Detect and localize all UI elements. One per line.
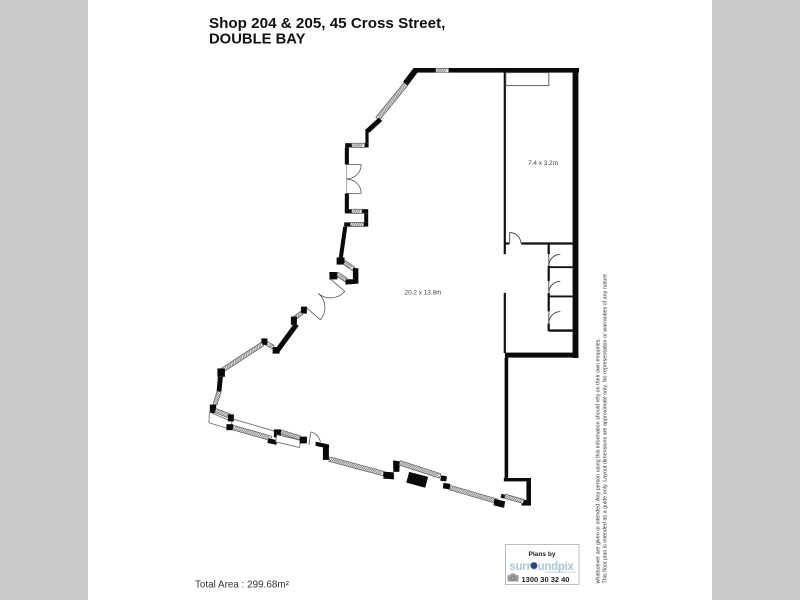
svg-text:20.2 x 13.8m: 20.2 x 13.8m (405, 290, 442, 297)
svg-text:Total Area : 299.68m²: Total Area : 299.68m² (195, 580, 290, 591)
svg-text:DOUBLE BAY: DOUBLE BAY (209, 32, 306, 48)
svg-text:1300 30 32 40: 1300 30 32 40 (522, 575, 570, 584)
svg-text:This floor plan is intended as: This floor plan is intended as a guide o… (603, 274, 609, 584)
svg-text:7.4 x 3.2m: 7.4 x 3.2m (528, 160, 558, 167)
svg-text:Shop 204 & 205, 45 Cross Stree: Shop 204 & 205, 45 Cross Street, (209, 15, 445, 32)
svg-text:whatsoever are given or intend: whatsoever are given or intended. Any pe… (596, 338, 602, 584)
svg-text:www.surroundpix.com.au: www.surroundpix.com.au (545, 570, 576, 574)
svg-text:Plans by: Plans by (528, 551, 555, 558)
